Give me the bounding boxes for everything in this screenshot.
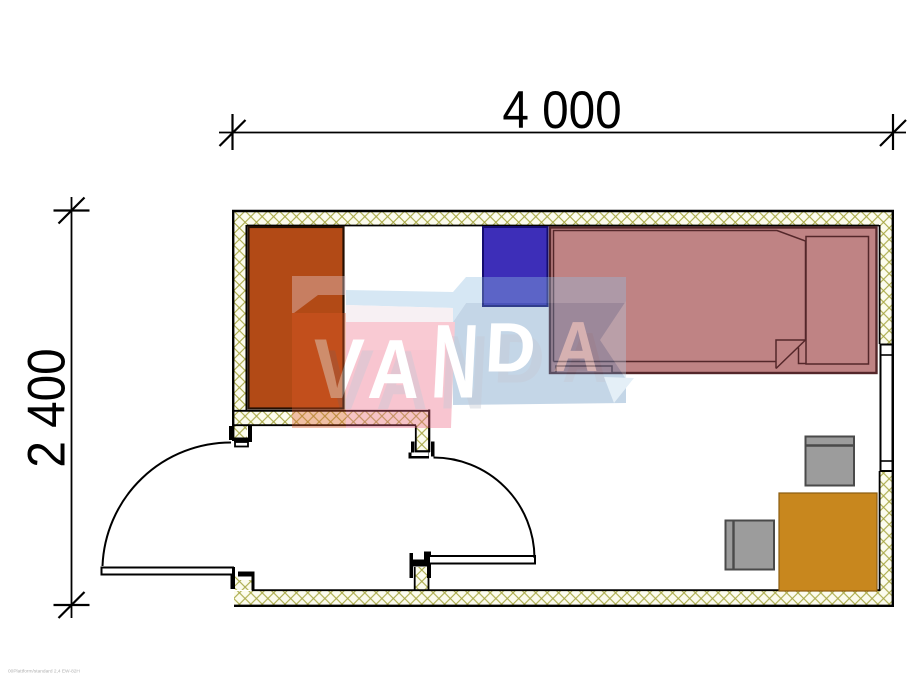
svg-text:4 000: 4 000	[502, 80, 621, 140]
svg-text:N: N	[429, 303, 481, 420]
svg-text:A: A	[366, 322, 423, 417]
svg-text:V: V	[310, 322, 366, 417]
svg-text:A: A	[552, 307, 601, 387]
svg-text:2 400: 2 400	[16, 348, 76, 467]
svg-text:D: D	[483, 309, 538, 387]
svg-text:00Plattform/standard 2,4 EW-82: 00Plattform/standard 2,4 EW-82H	[8, 669, 80, 675]
